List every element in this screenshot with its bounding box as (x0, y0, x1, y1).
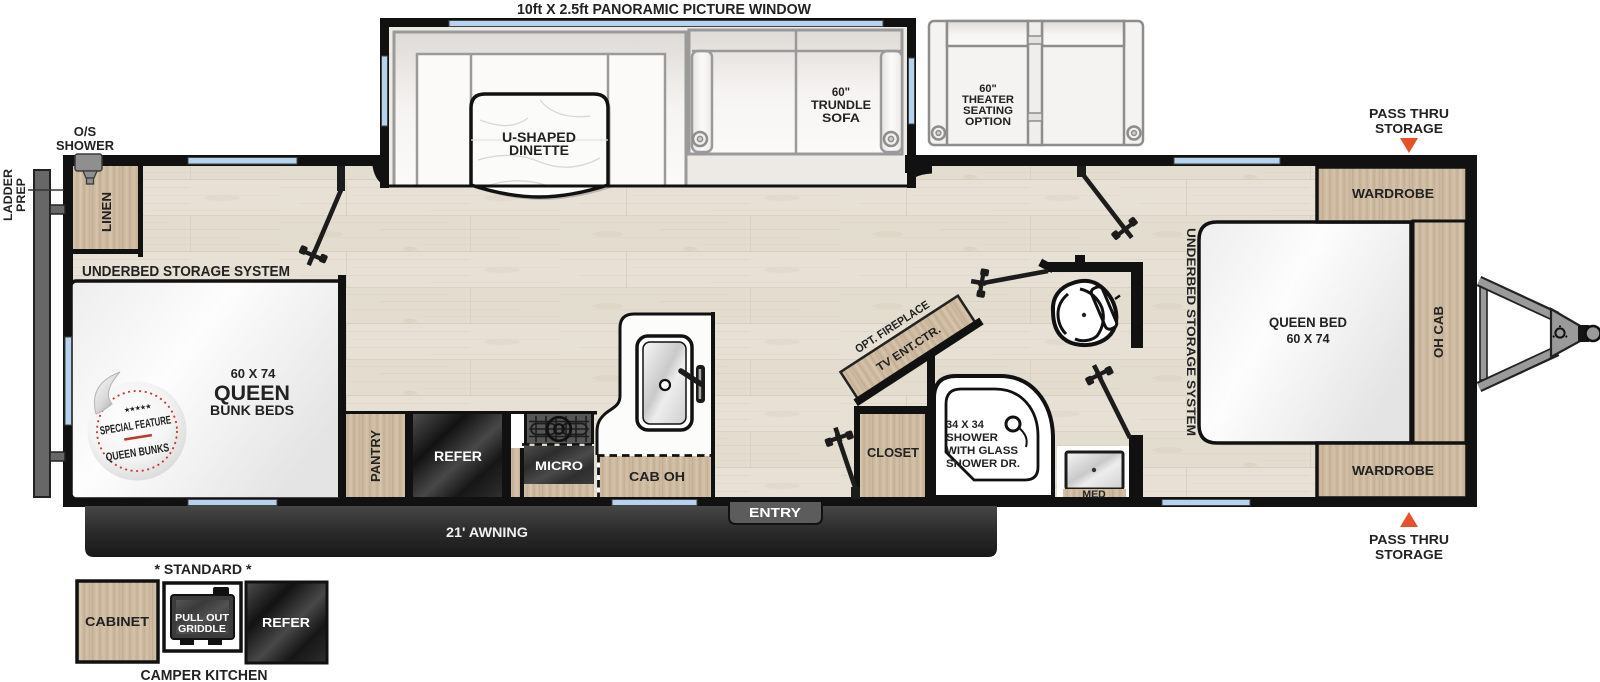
svg-text:PASS THRU: PASS THRU (1369, 532, 1449, 547)
svg-text:SHOWER DR.: SHOWER DR. (946, 458, 1020, 470)
svg-text:STORAGE: STORAGE (1375, 121, 1443, 136)
svg-text:CABINET: CABINET (85, 615, 149, 629)
svg-text:OH CAB: OH CAB (1432, 306, 1446, 358)
svg-text:PREP: PREP (14, 178, 28, 212)
svg-text:10ft X 2.5ft PANORAMIC PICTURE: 10ft X 2.5ft PANORAMIC PICTURE WINDOW (517, 2, 811, 18)
svg-text:PASS THRU: PASS THRU (1369, 106, 1449, 121)
svg-text:* STANDARD *: * STANDARD * (155, 562, 253, 577)
svg-text:REFER: REFER (262, 615, 311, 630)
svg-text:WARDROBE: WARDROBE (1352, 187, 1434, 201)
svg-text:WITH GLASS: WITH GLASS (946, 445, 1018, 457)
svg-text:CLOSET: CLOSET (867, 445, 919, 460)
svg-text:OPTION: OPTION (965, 116, 1011, 128)
svg-text:60 X 74: 60 X 74 (231, 366, 277, 381)
svg-text:21' AWNING: 21' AWNING (446, 525, 528, 540)
svg-text:SHOWER: SHOWER (56, 138, 115, 153)
svg-text:STORAGE: STORAGE (1375, 547, 1443, 562)
svg-text:CAB OH: CAB OH (629, 469, 685, 484)
svg-text:UNDERBED STORAGE SYSTEM: UNDERBED STORAGE SYSTEM (1184, 228, 1196, 436)
svg-text:DINETTE: DINETTE (509, 143, 569, 158)
svg-text:TRUNDLE: TRUNDLE (811, 100, 871, 112)
svg-text:MED: MED (1082, 489, 1106, 501)
svg-text:BUNK BEDS: BUNK BEDS (210, 402, 294, 418)
svg-text:UNDERBED STORAGE SYSTEM: UNDERBED STORAGE SYSTEM (82, 264, 290, 280)
svg-text:PULL OUT: PULL OUT (175, 613, 229, 624)
svg-text:SHOWER: SHOWER (946, 432, 998, 444)
svg-text:LADDER: LADDER (1, 169, 15, 221)
svg-text:WARDROBE: WARDROBE (1352, 464, 1434, 478)
svg-text:MICRO: MICRO (535, 459, 583, 473)
svg-text:60": 60" (832, 87, 850, 99)
svg-text:QUEEN BED: QUEEN BED (1269, 315, 1347, 330)
svg-text:LINEN: LINEN (100, 192, 114, 232)
svg-text:GRIDDLE: GRIDDLE (178, 624, 226, 635)
svg-text:34 X 34: 34 X 34 (946, 419, 985, 431)
svg-text:60 X 74: 60 X 74 (1286, 332, 1329, 346)
svg-text:SOFA: SOFA (822, 113, 860, 125)
svg-text:CAMPER KITCHEN: CAMPER KITCHEN (141, 668, 268, 682)
svg-text:ENTRY: ENTRY (749, 505, 801, 520)
svg-text:O/S: O/S (74, 124, 97, 139)
svg-text:REFER: REFER (434, 449, 482, 464)
svg-text:PANTRY: PANTRY (368, 430, 383, 482)
